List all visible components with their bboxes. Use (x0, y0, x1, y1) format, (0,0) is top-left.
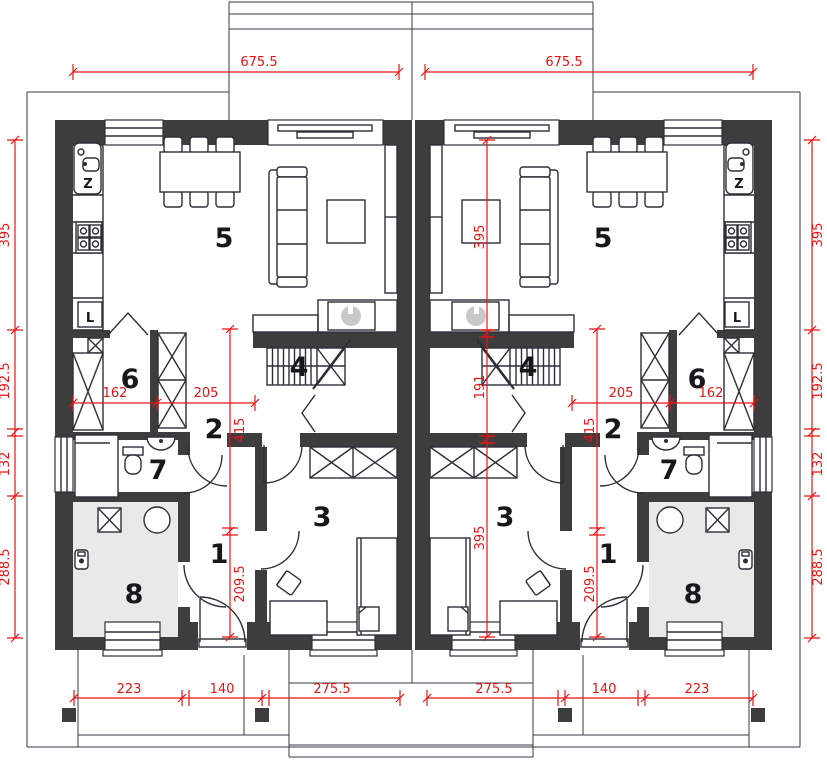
dim-bottom-right-c: 223 (685, 682, 710, 697)
dim-right-long-3: 395 (473, 526, 488, 551)
floor-plan-page: 5 6 7 2 4 1 3 8 5 6 7 2 4 1 3 8 Z Z L L … (0, 0, 827, 766)
dim-top-left: 675.5 (240, 55, 277, 70)
dim-left-d: 288.5 (0, 548, 13, 585)
dim-bottom-right-b: 140 (592, 682, 617, 697)
dim-right-unit-h2: 162 (699, 386, 724, 401)
dim-right-unit-v1: 415 (583, 418, 598, 443)
sink-label-right: Z (734, 177, 743, 192)
floor-plan-canvas: 5 6 7 2 4 1 3 8 5 6 7 2 4 1 3 8 Z Z L L … (0, 0, 827, 766)
room-label-living-right: 5 (594, 223, 613, 254)
dim-right-unit-h1: 205 (609, 386, 634, 401)
room-label-utility-left: 8 (125, 579, 144, 610)
dim-right-long-2: 191 (473, 375, 488, 400)
room-label-stairs-right: 4 (519, 352, 538, 383)
fridge-label-right: L (733, 311, 741, 326)
dim-top-right: 675.5 (545, 55, 582, 70)
room-label-entry-left: 1 (210, 539, 229, 570)
dim-bottom-left-a: 223 (117, 682, 142, 697)
dim-right-long-1: 395 (473, 225, 488, 250)
dim-left-unit-h1: 162 (103, 386, 128, 401)
room-label-hall-right: 2 (604, 414, 623, 445)
porch-post (255, 708, 269, 722)
room-label-bedroom-right: 3 (496, 502, 515, 533)
porch-post (62, 708, 76, 722)
room-label-utility-right: 8 (684, 579, 703, 610)
dim-left-unit-h2: 205 (194, 386, 219, 401)
dim-right-a: 395 (811, 223, 826, 248)
room-label-stairs-left: 4 (290, 352, 309, 383)
dim-bottom-right-a: 275.5 (475, 682, 512, 697)
room-label-bath-right: 7 (660, 455, 679, 486)
dim-left-a: 395 (0, 223, 13, 248)
room-label-bath-left: 7 (149, 455, 168, 486)
porch-post (751, 708, 765, 722)
room-label-bedroom-left: 3 (313, 502, 332, 533)
dim-bottom-left-c: 275.5 (313, 682, 350, 697)
room-label-living-left: 5 (215, 223, 234, 254)
porch-post (558, 708, 572, 722)
dim-right-unit-v2: 209.5 (583, 565, 598, 602)
room-label-entry-right: 1 (599, 539, 618, 570)
dim-left-b: 192.5 (0, 362, 13, 399)
sink-label-left: Z (83, 177, 92, 192)
fridge-label-left: L (86, 311, 94, 326)
dim-left-unit-v1: 415 (233, 418, 248, 443)
room-label-hall-left: 2 (205, 414, 224, 445)
dim-right-c: 132 (811, 452, 826, 477)
dim-right-d: 288.5 (811, 548, 826, 585)
dim-bottom-left-b: 140 (210, 682, 235, 697)
dim-left-unit-v2: 209.5 (233, 565, 248, 602)
dim-right-b: 192.5 (811, 362, 826, 399)
dim-left-c: 132 (0, 452, 13, 477)
